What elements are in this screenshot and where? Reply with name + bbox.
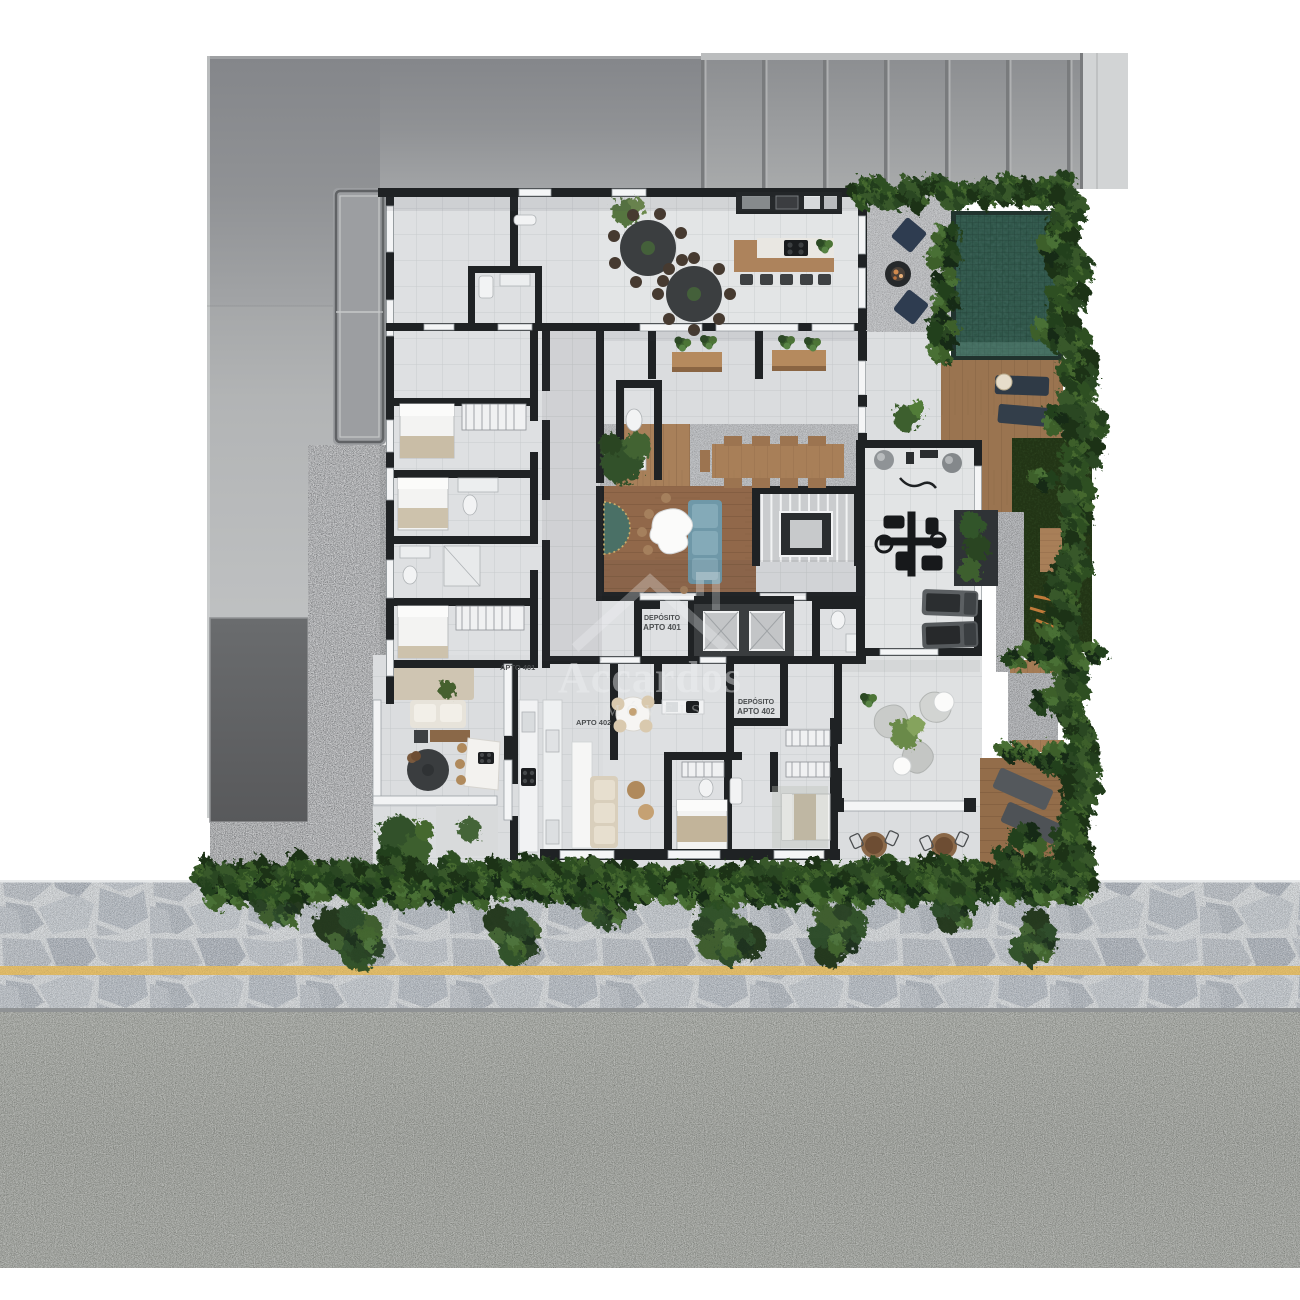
svg-text:DEPÓSITO: DEPÓSITO	[644, 613, 681, 622]
svg-text:APTO 402: APTO 402	[576, 718, 611, 727]
svg-text:APTO 401: APTO 401	[643, 623, 681, 632]
svg-text:DEPÓSITO: DEPÓSITO	[738, 697, 775, 706]
svg-text:APTO 401: APTO 401	[500, 663, 535, 672]
svg-text:Accardos: Accardos	[558, 653, 742, 702]
svg-text:APTO 402: APTO 402	[737, 707, 775, 716]
